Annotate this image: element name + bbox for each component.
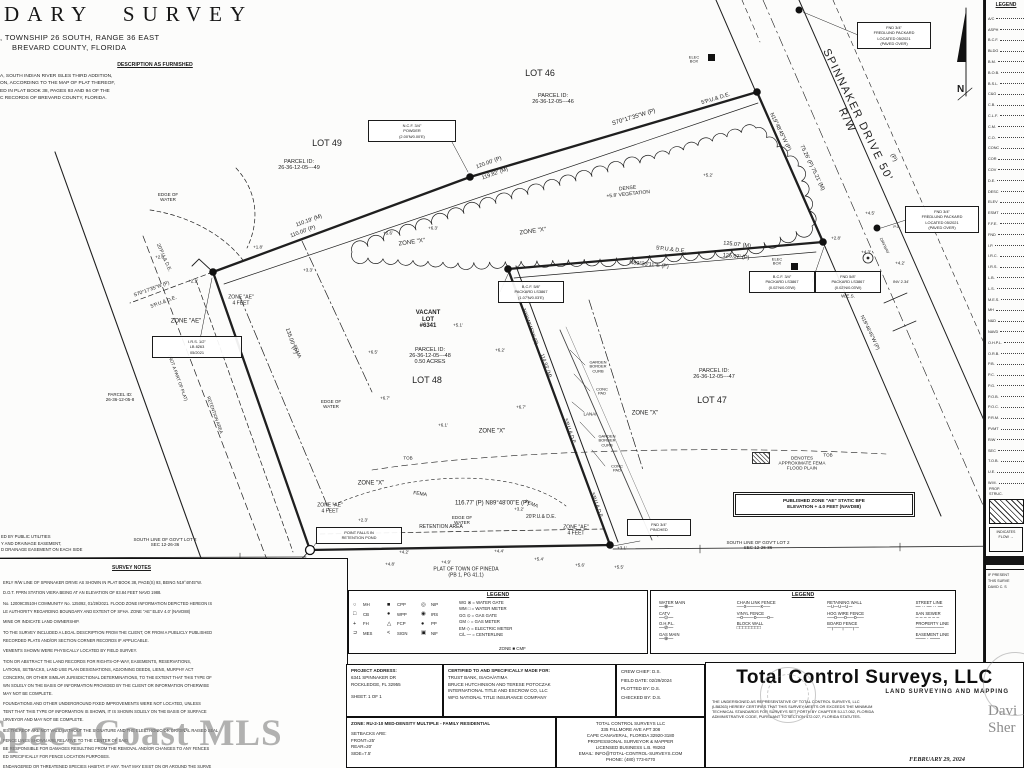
- note-line: TO THE SURVEY INCLUDED A LEGAL DESCRIPTI…: [3, 629, 343, 637]
- abbreviation-text: M.E.S.: [988, 298, 999, 302]
- legend-linetype-glyph: ─∪─∪─∪─: [827, 605, 864, 609]
- legend-linetype-glyph: — ·· — ·· —: [916, 605, 949, 609]
- abbreviation-text: L.B.: [988, 276, 995, 280]
- abbreviation-text: P.C.: [988, 373, 995, 377]
- crew-line: CHECKED BY: D.S.: [621, 694, 700, 703]
- abbreviation-row: COV: [988, 161, 1024, 172]
- abbreviation-row: U.E.: [988, 463, 1024, 474]
- abbreviation-row: B.O.B.: [988, 64, 1024, 75]
- abbreviation-leader: [1000, 267, 1024, 268]
- cert-fragment-line: DAVID C. S: [988, 584, 1024, 590]
- abbreviation-text: A/C: [988, 17, 994, 21]
- abbreviation-leader: [1000, 331, 1024, 332]
- legend-symbol-item: ●PP: [421, 619, 455, 629]
- legend-symbol-label: CPP: [397, 602, 406, 607]
- legend-symbol-label: MES: [363, 631, 372, 636]
- note-paragraph: TION OR ABSTRACT THE LAND RECORDS FOR RI…: [3, 658, 343, 698]
- abbreviation-row: B.C.F.: [988, 32, 1024, 43]
- abbreviation-leader: [998, 169, 1024, 170]
- abbreviation-text: B.C.F.: [988, 38, 998, 42]
- legend-linetype-glyph: ──o──o──o──: [827, 616, 864, 620]
- right-legend-column: LEGEND A/CASPHB.C.F.BLDGB.M.B.O.B.B.S.L.…: [984, 0, 1024, 662]
- note-line: ENDANGERED OR THREATENED SPECIES HABITAT…: [3, 763, 343, 768]
- abbreviation-text: P.G.: [988, 384, 995, 388]
- abbreviation-text: ASPH: [988, 28, 998, 32]
- legend-symbol-item: ◉IRS: [421, 610, 455, 620]
- abbreviation-text: R/W: [988, 438, 995, 442]
- abbreviation-text: C.B.: [988, 103, 995, 107]
- abbreviation-leader: [1004, 342, 1024, 343]
- firm-box: Total Control Surveys, LLC LAND SURVEYIN…: [705, 662, 1024, 768]
- legend-symbol-label: NIP: [431, 602, 438, 607]
- legend-symbol-item: ◎NIP: [421, 600, 455, 610]
- abbreviation-row: C.L.F.: [988, 107, 1024, 118]
- abbreviation-leader: [1000, 83, 1024, 84]
- legend-symbol-column: ■CPP●WPP△FCP<SIGN: [387, 600, 421, 639]
- legend-symbol-glyph: △: [387, 621, 397, 627]
- abbreviation-row: FND: [988, 226, 1024, 237]
- abbreviation-text: COR: [988, 157, 996, 161]
- setback-line: SETBACKS ARE:: [351, 731, 551, 738]
- legend-symbol-glyph: □: [353, 611, 363, 617]
- legend-symbol-label: FH: [363, 621, 369, 626]
- abbreviation-text: U.E.: [988, 470, 995, 474]
- legend-symbol-glyph: ▣: [421, 630, 431, 636]
- certified-to-line: TRUST BANK, ISAOA/ATIMA: [448, 675, 611, 682]
- legend-symbol-glyph: ◎: [421, 602, 431, 608]
- abbreviation-row: W.M.: [988, 474, 1024, 485]
- abbreviation-row: M.E.S.: [988, 291, 1024, 302]
- north-arrow-label: N: [957, 84, 964, 95]
- abbreviation-leader: [998, 126, 1024, 127]
- legend-linetype-column: WATER MAIN—⊗—CATV—⊙—O.H.P.L.—⊘—GAS MAIN—…: [659, 600, 685, 642]
- abbreviation-text: SEC: [988, 449, 996, 453]
- note-line: CONCERN, OR OTHER SIMILAR JURISDICTIONAL…: [3, 674, 343, 682]
- abbreviation-row: T.O.B.: [988, 453, 1024, 464]
- legend-symbol-item: ■CPP: [387, 600, 421, 610]
- abbreviation-row: SEC: [988, 442, 1024, 453]
- legend-symbol-glyph: ◉: [421, 611, 431, 617]
- note-line: D.O.T. FPRN STATION VIERA BEING AT AN EL…: [3, 589, 343, 597]
- project-address-line: 6341 SPINNAKER DR: [351, 675, 438, 682]
- legend-def-line: C/L — = CENTERLINE: [459, 632, 644, 638]
- abbreviation-row: MH: [988, 302, 1024, 313]
- legend-symbol-label: WPP: [397, 612, 407, 617]
- legend-symbol-glyph: <: [387, 630, 397, 636]
- abbreviation-row: CONC: [988, 140, 1024, 151]
- legend-symbol-glyph: ●: [421, 621, 431, 627]
- abbreviation-text: FND: [988, 233, 996, 237]
- abbreviation-leader: [1000, 40, 1024, 41]
- abbreviation-row: A/C: [988, 10, 1024, 21]
- certified-to-box: CERTIFIED TO AND SPECIFICALLY MADE FOR: …: [443, 664, 616, 717]
- abbreviation-leader: [1001, 353, 1024, 354]
- proposed-structure-hatch: [989, 499, 1024, 524]
- abbreviation-text: P.O.B.: [988, 395, 999, 399]
- abbreviation-leader: [997, 277, 1024, 278]
- prop-structure-line: STRUC.: [989, 492, 1024, 497]
- abbreviation-leader: [997, 375, 1024, 376]
- abbreviation-row: P.G.: [988, 377, 1024, 388]
- legend-linetype-item: HOG WIRE FENCE──o──o──o──: [827, 611, 864, 620]
- abbreviation-row: DESC: [988, 183, 1024, 194]
- note-line: LE AUTHORITY REGARDING BOUNDARY AND EXTE…: [3, 608, 343, 616]
- abbreviation-leader: [1001, 148, 1024, 149]
- legend-linetype-item: WATER MAIN—⊗—: [659, 600, 685, 609]
- abbreviation-text: I.R.C.: [988, 254, 998, 258]
- abbreviation-leader: [997, 439, 1024, 440]
- legend-linetype-item: PROPERTY LINE────────: [916, 621, 949, 630]
- abbreviation-row: F.F.E.: [988, 215, 1024, 226]
- abbreviation-row: B.M.: [988, 53, 1024, 64]
- abbreviation-text: N&D: [988, 319, 996, 323]
- mls-watermark: Space Coast MLS: [0, 712, 283, 755]
- survey-date: FEBRUARY 29, 2024: [909, 756, 965, 763]
- surveyor-seal-ghost-inner: [767, 674, 809, 716]
- legend-linetype-glyph: —⊘—: [659, 626, 685, 630]
- abbreviation-row: B.S.L.: [988, 75, 1024, 86]
- abbreviation-row: L.B.: [988, 269, 1024, 280]
- agent-watermark-line: Sher: [988, 720, 1017, 737]
- abbreviation-leader: [1000, 115, 1024, 116]
- crew-line: FIELD DATE: 02/29/2024: [621, 677, 700, 686]
- abbreviation-row: I.R.S.: [988, 258, 1024, 269]
- flow-indicator-box: INDICATESFLOW →: [989, 527, 1023, 552]
- abbreviation-leader: [999, 483, 1024, 484]
- legend-linetype-item: CATV—⊙—: [659, 611, 685, 620]
- legend-symbols-box: LEGEND ○MH□CB+FH⊃MES■CPP●WPP△FCP<SIGN◎NI…: [348, 590, 648, 654]
- legend-defs-column: WG ⊗ = WATER GATEWM □ = WATER METERGG ⊙ …: [455, 600, 644, 639]
- abbreviation-leader: [997, 105, 1024, 106]
- abbreviation-row: C.B.: [988, 96, 1024, 107]
- firm-name: Total Control Surveys, LLC: [706, 667, 1023, 689]
- certified-to-line: WFG NATIONAL TITLE INSURANCE COMPANY: [448, 695, 611, 702]
- abbreviation-row: P.O.B.: [988, 388, 1024, 399]
- cert-fragment: IF PRESENTTHIS SURVEDAVID C. S: [986, 569, 1024, 590]
- firm-tagline: LAND SURVEYING AND MAPPING: [706, 689, 1009, 695]
- abbreviation-leader: [1001, 72, 1024, 73]
- abbreviation-leader: [1000, 223, 1024, 224]
- legend-linetype-column: RETAINING WALL─∪─∪─∪─HOG WIRE FENCE──o──…: [827, 600, 864, 642]
- legend-linetype-glyph: ─┬──┬──┬─: [827, 626, 864, 630]
- legend-symbol-item: △FCP: [387, 619, 421, 629]
- note-line: MINE OR INDICATE LAND OWNERSHIP.: [3, 618, 343, 626]
- abbreviation-text: D.E.: [988, 179, 995, 183]
- abbreviation-text: B.O.B.: [988, 71, 999, 75]
- abbreviation-text: T.O.B.: [988, 459, 999, 463]
- company-line: PHONE: (480) 773-6770: [561, 757, 700, 763]
- abbreviation-leader: [998, 159, 1024, 160]
- abbreviation-row: C.M.: [988, 118, 1024, 129]
- legend-symbol-label: NIF: [431, 631, 438, 636]
- abbreviation-text: L.S.: [988, 287, 995, 291]
- agent-watermark: DaviSher: [988, 703, 1017, 737]
- certified-to-line: INTERNATIONAL TITLE AND ESCROW CO, LLC: [448, 688, 611, 695]
- legend-symbol-column: ○MH□CB+FH⊃MES: [353, 600, 387, 639]
- note-paragraph: VEMENTS SHOWN WERE PHYSICALLY LOCATED BY…: [3, 647, 343, 655]
- abbreviation-leader: [996, 310, 1024, 311]
- abbreviation-text: P.R.M.: [988, 416, 999, 420]
- certified-to-header: CERTIFIED TO AND SPECIFICALLY MADE FOR:: [448, 668, 611, 675]
- crew-info-box: CREW CHIEF: D.S.FIELD DATE: 02/29/2024PL…: [616, 664, 705, 717]
- abbreviation-text: ELEV: [988, 200, 998, 204]
- abbreviation-text: F.F.E.: [988, 222, 998, 226]
- note-line: RECORDED PLATS AND/OR SECTION CORNER REC…: [3, 637, 343, 645]
- abbreviation-row: ASPH: [988, 21, 1024, 32]
- legend-linetype-glyph: – – – – – –: [916, 616, 949, 620]
- fema-hatch-swatch: [752, 452, 770, 464]
- project-address-box: PROJECT ADDRESS: 6341 SPINNAKER DRROCKLE…: [346, 664, 443, 717]
- legend-linetype-glyph: ────────: [916, 626, 949, 630]
- legend-symbol-item: ○MH: [353, 600, 387, 610]
- abbreviation-text: I.P.: [988, 244, 993, 248]
- abbreviation-text: W.M.: [988, 481, 997, 485]
- abbreviation-text: C.O.: [988, 136, 996, 140]
- abbreviation-text: C.M.: [988, 125, 996, 129]
- flow-line: FLOW →: [990, 535, 1022, 540]
- legend-linetype-item: EASEMENT LINE—— · ——: [916, 632, 949, 641]
- abbreviation-row: BLDG: [988, 42, 1024, 53]
- legend-zone-row: ZONE ■ CMF: [499, 646, 526, 651]
- legend-linetype-glyph: ──x────x──: [737, 605, 776, 609]
- abbreviation-text: NAVD: [988, 330, 998, 334]
- abbreviation-row: P.R.M.: [988, 409, 1024, 420]
- divider-bar: [986, 556, 1024, 565]
- note-paragraph: ENDANGERED OR THREATENED SPECIES HABITAT…: [3, 763, 343, 768]
- abbreviation-row: PVMT: [988, 420, 1024, 431]
- survey-notes-header: SURVEY NOTES: [112, 565, 151, 571]
- abbreviation-row: I.P.: [988, 237, 1024, 248]
- abbreviation-leader: [995, 245, 1024, 246]
- abbreviation-text: C&G: [988, 92, 996, 96]
- zoning-header: ZONE: RU-2-10 MED-DENSITY MULTIPLE - FAM…: [351, 721, 551, 728]
- boundary-survey-scan: DARY SURVEY , TOWNSHIP 26 SOUTH, RANGE 3…: [0, 0, 1024, 768]
- abbreviation-leader: [1001, 418, 1024, 419]
- abbreviation-leader: [998, 94, 1024, 95]
- legend-linetype-column: CHAIN LINK FENCE──x────x──VINYL FENCE─o─…: [737, 600, 776, 642]
- zoning-box: ZONE: RU-2-10 MED-DENSITY MULTIPLE - FAM…: [346, 717, 556, 768]
- abbreviation-row: NAVD: [988, 323, 1024, 334]
- setback-line: REAR=20': [351, 744, 551, 751]
- note-paragraph: MINE OR INDICATE LAND OWNERSHIP.: [3, 618, 343, 626]
- abbreviation-text: DESC: [988, 190, 999, 194]
- abbreviation-row: O.R.B.: [988, 345, 1024, 356]
- legend-symbol-label: FCP: [397, 621, 406, 626]
- firm-cert-line: ADMINISTRATIVE CODE, PURSUANT TO SECTION…: [712, 714, 1017, 719]
- sheet-number: SHEET: 1 OF 1: [351, 694, 438, 701]
- setback-line: FRONT=25': [351, 738, 551, 745]
- abbreviation-leader: [1000, 51, 1024, 52]
- abbreviation-row: R/W: [988, 431, 1024, 442]
- legend-symbol-item: □CB: [353, 610, 387, 620]
- legend-linetype-item: BLOCK WALL□□□□□□□□: [737, 621, 776, 630]
- abbreviation-leader: [1000, 256, 1024, 257]
- abbreviation-leader: [997, 385, 1024, 386]
- legend-symbol-glyph: ⊃: [353, 630, 363, 636]
- legend-linetype-item: CHAIN LINK FENCE──x────x──: [737, 600, 776, 609]
- abbreviation-leader: [997, 288, 1024, 289]
- company-address-box: TOTAL CONTROL SURVEYS LLC335 FILLMORE AV…: [556, 717, 705, 768]
- abbreviation-leader: [1001, 461, 1024, 462]
- legend-linetype-glyph: —⊕—: [659, 637, 685, 641]
- legend-linetype-item: STREET LINE— ·· — ·· —: [916, 600, 949, 609]
- abbreviation-row: ELEV: [988, 194, 1024, 205]
- abbreviation-text: P.O.C.: [988, 405, 999, 409]
- note-line: MAY NOT BE COMPLETE.: [3, 690, 343, 698]
- abbreviation-text: B.M.: [988, 60, 996, 64]
- project-address-header: PROJECT ADDRESS:: [351, 668, 438, 675]
- abbreviation-text: PVMT: [988, 427, 999, 431]
- setback-line: SIDE=7.5': [351, 751, 551, 758]
- abbreviation-leader: [998, 137, 1024, 138]
- legend-linetype-item: GAS MAIN—⊕—: [659, 632, 685, 641]
- legend-symbol-label: SIGN: [397, 631, 408, 636]
- abbreviation-leader: [997, 364, 1024, 365]
- abbreviation-row: C&G: [988, 86, 1024, 97]
- legend-symbol-label: MH: [363, 602, 370, 607]
- abbreviation-leader: [1001, 213, 1024, 214]
- abbreviation-text: P.B.: [988, 362, 995, 366]
- abbreviation-leader: [1001, 299, 1024, 300]
- crew-line: CREW CHIEF: D.S.: [621, 668, 700, 677]
- legend-symbol-item: +FH: [353, 619, 387, 629]
- abbreviation-text: CONC: [988, 146, 999, 150]
- abbreviation-leader: [1001, 396, 1024, 397]
- abbreviation-leader: [996, 18, 1024, 19]
- legend-linetype-glyph: —— · ——: [916, 637, 949, 641]
- abbreviation-leader: [998, 234, 1024, 235]
- legend-symbol-glyph: ●: [387, 611, 397, 617]
- note-paragraph: No. 12009C0510H COMMUNITY No. 125092, 01…: [3, 600, 343, 616]
- abbreviation-row: O.H.P.L.: [988, 334, 1024, 345]
- abbreviation-leader: [1001, 429, 1024, 430]
- abbreviation-leader: [998, 450, 1024, 451]
- legend-symbol-label: IRS: [431, 612, 438, 617]
- note-line: No. 12009C0510H COMMUNITY No. 125092, 01…: [3, 600, 343, 608]
- abbreviation-text: I.R.S.: [988, 265, 998, 269]
- note-line: FOUNDATIONS AND OTHER UNDERGROUND FIXED …: [3, 700, 343, 708]
- note-paragraph: TO THE SURVEY INCLUDED A LEGAL DESCRIPTI…: [3, 629, 343, 645]
- note-line: ERLY R/W LINE OF SPINNAKER DRIVE AS SHOW…: [3, 579, 343, 587]
- abbreviation-text: MH: [988, 308, 994, 312]
- legend-linetype-item: BOARD FENCE─┬──┬──┬─: [827, 621, 864, 630]
- abbreviation-text: BLDG: [988, 49, 998, 53]
- legend-symbol-column: ◎NIP◉IRS●PP▣NIF: [421, 600, 455, 639]
- abbreviation-text: O.R.B.: [988, 352, 999, 356]
- legend-linetype-column: STREET LINE— ·· — ·· —SAN SEWER– – – – –…: [916, 600, 949, 642]
- abbreviation-text: O.H.P.L.: [988, 341, 1002, 345]
- note-line: TION OR ABSTRACT THE LAND RECORDS FOR RI…: [3, 658, 343, 666]
- legend-linetype-item: O.H.P.L.—⊘—: [659, 621, 685, 630]
- legend-symbol-item: ⊃MES: [353, 629, 387, 639]
- abbreviation-leader: [1000, 202, 1024, 203]
- abbreviation-row: P.B.: [988, 356, 1024, 367]
- legend-linetype-item: SAN SEWER– – – – – –: [916, 611, 949, 620]
- legend-symbol-glyph: +: [353, 621, 363, 627]
- note-line: WN SOLELY ON THE BASIS OF INFORMATION PR…: [3, 682, 343, 690]
- abbreviation-row: COR: [988, 150, 1024, 161]
- abbreviation-leader: [998, 61, 1024, 62]
- legend-symbol-item: <SIGN: [387, 629, 421, 639]
- legend-symbol-label: CB: [363, 612, 369, 617]
- note-line: LATIONS, SETBACKS, LAND USE PLAN DESIGNA…: [3, 666, 343, 674]
- legend-symbol-glyph: ○: [353, 602, 363, 608]
- legend-symbol-label: PP: [431, 621, 437, 626]
- abbreviation-row: L.S.: [988, 280, 1024, 291]
- agent-watermark-line: Davi: [988, 703, 1017, 720]
- certified-to-line: BRUCE HUTCHINSON AND TERESE POTOCZAK: [448, 682, 611, 689]
- abbreviation-row: N&D: [988, 312, 1024, 323]
- abbreviation-text: C.L.F.: [988, 114, 998, 118]
- crew-line: PLOTTED BY: D.S.: [621, 685, 700, 694]
- legend-linetype-glyph: —⊗—: [659, 605, 685, 609]
- abbreviation-row: C.O.: [988, 129, 1024, 140]
- abbreviation-row: D.E.: [988, 172, 1024, 183]
- legend-linetype-glyph: ─o───o───o─: [737, 616, 776, 620]
- abbreviation-text: B.S.L.: [988, 82, 998, 86]
- legend-linetype-glyph: —⊙—: [659, 616, 685, 620]
- abbreviation-row: P.O.C.: [988, 399, 1024, 410]
- abbreviation-leader: [997, 180, 1024, 181]
- legend-linetype-glyph: □□□□□□□□: [737, 626, 776, 630]
- legend-linetype-item: RETAINING WALL─∪─∪─∪─: [827, 600, 864, 609]
- abbreviation-leader: [1000, 29, 1024, 30]
- legend-linetypes-box: LEGEND WATER MAIN—⊗—CATV—⊙—O.H.P.L.—⊘—GA…: [650, 590, 956, 654]
- legend-symbol-glyph: ■: [387, 602, 397, 608]
- project-address-line: ROCKLEDGE, FL 32955: [351, 682, 438, 689]
- legend-linetype-item: VINYL FENCE─o───o───o─: [737, 611, 776, 620]
- note-line: VEMENTS SHOWN WERE PHYSICALLY LOCATED BY…: [3, 647, 343, 655]
- abbreviation-row: ESMT: [988, 204, 1024, 215]
- abbreviation-leader: [1001, 407, 1024, 408]
- note-paragraph: D.O.T. FPRN STATION VIERA BEING AT AN EL…: [3, 589, 343, 597]
- abbreviation-row: P.C.: [988, 366, 1024, 377]
- legend-symbol-item: ▣NIF: [421, 629, 455, 639]
- proposed-structure-label: PROP.STRUC.: [986, 487, 1024, 497]
- abbreviation-leader: [1001, 191, 1024, 192]
- abbreviation-text: COV: [988, 168, 996, 172]
- abbreviation-leader: [998, 321, 1024, 322]
- abbreviation-row: I.R.C.: [988, 248, 1024, 259]
- note-paragraph: ERLY R/W LINE OF SPINNAKER DRIVE AS SHOW…: [3, 579, 343, 587]
- abbreviation-leader: [997, 472, 1024, 473]
- abbreviation-text: ESMT: [988, 211, 999, 215]
- legend-symbol-item: ●WPP: [387, 610, 421, 620]
